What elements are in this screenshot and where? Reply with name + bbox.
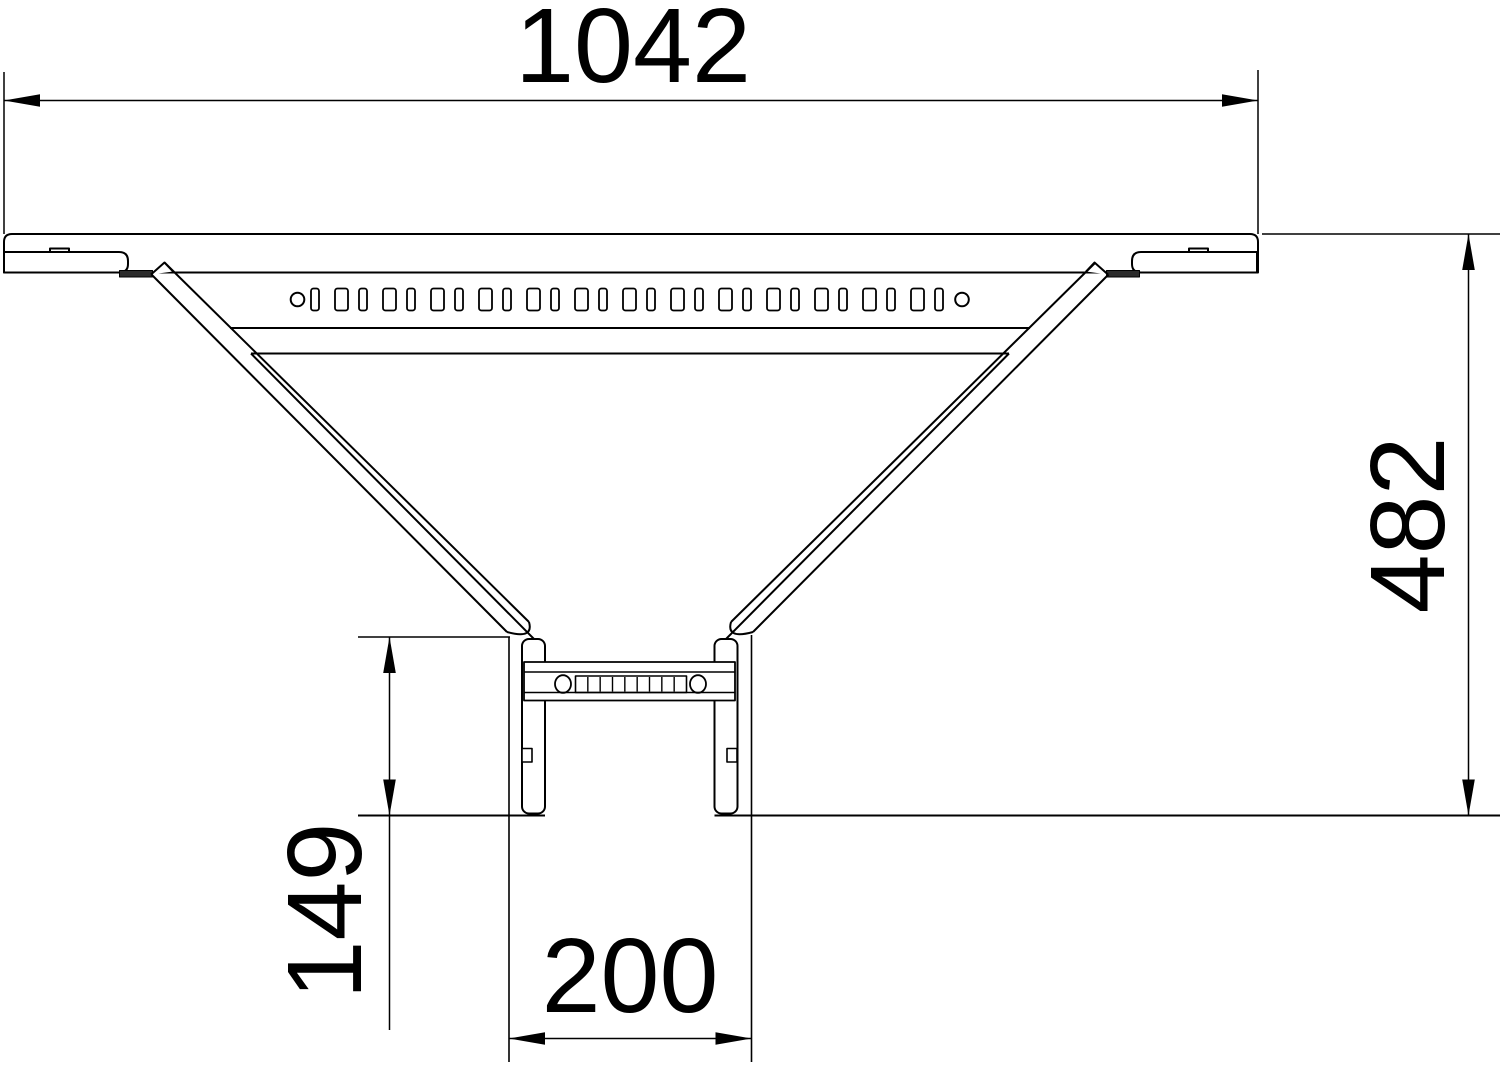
top-rung-hole-left — [291, 293, 305, 307]
right-clamp — [1107, 271, 1140, 278]
top-rung-slot-row — [311, 289, 943, 311]
left-clamp — [120, 271, 153, 278]
tee-plan-line-art — [0, 0, 1500, 1070]
drawing-canvas: 1042 482 149 200 — [0, 0, 1500, 1070]
branch-rung — [524, 662, 735, 701]
main-run-rail — [4, 234, 1258, 273]
top-rung-hole-right — [955, 293, 969, 307]
part-outlines — [4, 234, 1500, 1062]
left-stub-rail-notch — [522, 749, 532, 763]
left-coupler — [4, 252, 128, 273]
dim-label-branch-length: 149 — [272, 823, 378, 1000]
dim-label-overall-width: 1042 — [515, 0, 751, 99]
left-inner-bend-line — [251, 354, 535, 641]
right-stub-rail-notch — [727, 749, 737, 763]
dim-label-branch-width: 200 — [542, 923, 719, 1029]
right-inner-bend-line — [725, 354, 1009, 641]
right-coupler — [1132, 252, 1257, 273]
dim-label-overall-depth: 482 — [1355, 437, 1461, 614]
